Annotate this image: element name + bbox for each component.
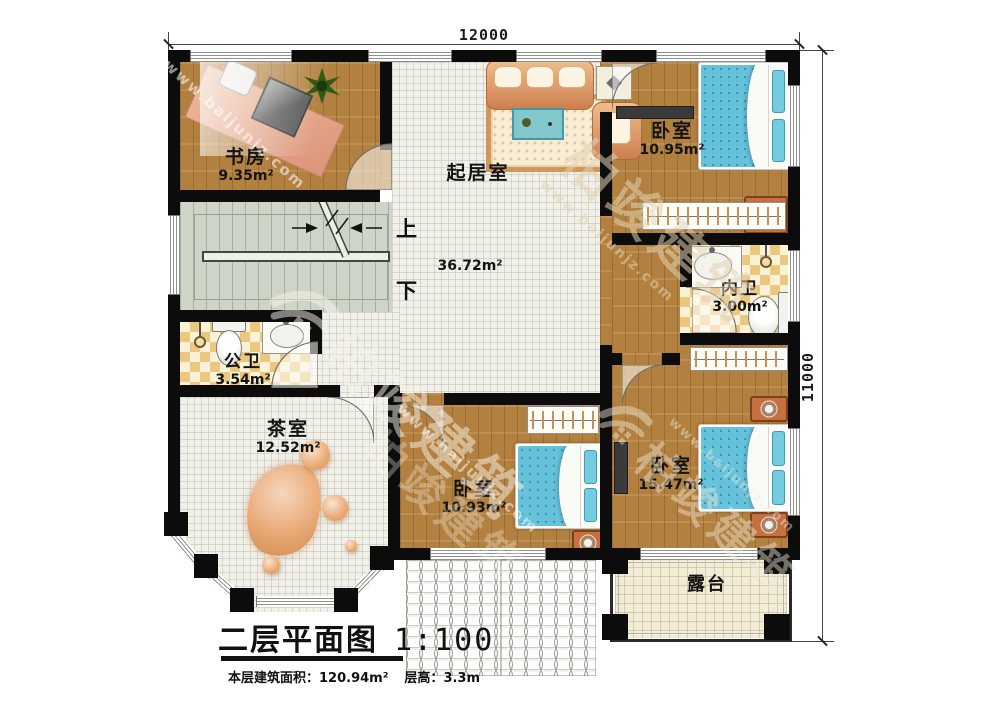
plan-title: 二层平面图 [218, 615, 378, 659]
room-name: 卧室 [441, 478, 506, 500]
coffee-table [512, 108, 564, 140]
drain-cord [199, 320, 201, 337]
stairs-up-label: 上 [396, 213, 417, 243]
room-name: 书房 [218, 146, 273, 168]
room-name: 露台 [687, 574, 727, 595]
dimension-ext [799, 32, 800, 50]
double-bed-bottom-right [698, 424, 790, 512]
room-label-bedroom-bottom-middle: 卧室 10.93m² [441, 478, 506, 517]
tv-screen [614, 442, 628, 494]
bed-duvet [701, 65, 765, 167]
table-decor [548, 122, 552, 126]
bed-pillow-panel [768, 65, 787, 167]
door-arc [622, 365, 666, 409]
window [788, 428, 800, 516]
tea-art-circle [345, 540, 357, 552]
bay-pillar [194, 554, 218, 578]
room-name: 茶室 [255, 418, 320, 440]
bed-pillow [772, 470, 785, 505]
wall [600, 345, 612, 560]
dimension-line-right [822, 50, 823, 642]
floor-area-stat: 本层建筑面积：120.94m² [228, 667, 388, 686]
threshold [680, 287, 692, 333]
title-stats: 本层建筑面积：120.94m² 层高：3.3m [228, 667, 480, 686]
room-area: 12.52m² [255, 440, 320, 457]
window [168, 215, 180, 295]
dimension-width-label: 12000 [459, 26, 509, 44]
room-area: 3.00m² [712, 299, 767, 316]
bed-pillow [772, 70, 785, 113]
bed-pillow-panel [768, 427, 787, 509]
room-name: 内卫 [712, 279, 767, 299]
wall [322, 385, 340, 397]
floor-drain [194, 336, 206, 348]
bay-pillar [164, 512, 188, 536]
tea-art-circle [262, 556, 280, 574]
terrace-pillar [764, 548, 790, 574]
wall [662, 353, 680, 365]
room-area: 15.47m² [638, 477, 703, 494]
window [430, 548, 546, 560]
wall [612, 353, 622, 365]
wall [168, 190, 380, 202]
title-block: 二层平面图 1:100 [218, 615, 494, 659]
floor-height-stat: 层高：3.3m [404, 667, 480, 686]
title-underline [221, 656, 403, 661]
door-arc [326, 397, 374, 445]
wall [680, 245, 692, 287]
door-arc [344, 142, 392, 190]
terrace-pillar [602, 548, 628, 574]
wall [392, 393, 402, 405]
threshold [600, 216, 612, 345]
wall [612, 233, 788, 245]
window [788, 250, 800, 322]
door-arc [612, 63, 660, 111]
desk-light-glow [200, 56, 400, 156]
stairs-break-symbol [286, 194, 396, 298]
dimension-ext [792, 641, 834, 642]
room-area: 3.54m² [215, 372, 270, 389]
window [190, 50, 292, 62]
sofa-cushion [494, 66, 522, 88]
window [516, 50, 602, 62]
nightstand [750, 512, 788, 538]
room-label-living: 起居室 [446, 162, 509, 184]
bed-pillow [584, 450, 597, 484]
plan-scale: 1:100 [394, 623, 494, 658]
room-label-private-bath: 内卫 3.00m² [712, 279, 767, 316]
threshold [340, 385, 374, 397]
bay-pillar [230, 588, 254, 612]
sink-faucet [709, 247, 715, 253]
room-label-public-bath: 公卫 3.54m² [215, 352, 270, 389]
room-area: 10.93m² [441, 500, 506, 517]
floor-area-label: 本层建筑面积： [228, 671, 319, 686]
bed-duvet [701, 427, 765, 509]
double-bed-bottom-middle [515, 443, 602, 529]
tea-art-circle [322, 495, 348, 521]
window [368, 50, 452, 62]
window [640, 548, 758, 560]
sofa-cushion [526, 66, 554, 88]
stairs-down-label: 下 [396, 275, 417, 305]
room-area: 9.35m² [218, 168, 273, 185]
floor-plan-canvas: 上 下 [0, 0, 1000, 706]
room-name: 卧室 [638, 455, 703, 477]
bed-pillow [772, 431, 785, 466]
sofa-cushion [558, 66, 586, 88]
bed-pillow [772, 119, 785, 162]
wall [380, 62, 392, 150]
double-bed-top-right [698, 62, 790, 170]
room-area: 10.95m² [639, 142, 704, 159]
dimension-height-label: 11000 [799, 352, 817, 402]
room-label-terrace: 露台 [687, 574, 727, 595]
door-arc [270, 340, 318, 388]
floor-height-label: 层高： [404, 671, 443, 686]
bay-pillar [334, 588, 358, 612]
room-label-tea-room: 茶室 12.52m² [255, 418, 320, 457]
bay-window [256, 596, 338, 607]
wardrobe [642, 202, 786, 230]
terrace-pillar [602, 614, 628, 640]
wardrobe [690, 347, 788, 371]
terrace-parapet-inner [618, 562, 784, 634]
threshold [402, 393, 444, 405]
room-label-bedroom-bottom-right: 卧室 15.47m² [638, 455, 703, 494]
bed-duvet [518, 446, 577, 526]
wall [680, 333, 788, 345]
room-label-study: 书房 9.35m² [218, 146, 273, 185]
dimension-ext [800, 50, 834, 51]
nightstand [750, 396, 788, 422]
bed-pillow [584, 488, 597, 522]
floor-height-value: 3.3m [443, 671, 480, 686]
room-area-living: 36.72m² [437, 258, 502, 275]
wall [444, 393, 600, 405]
floor-area-value: 120.94m² [319, 671, 388, 686]
room-label-bedroom-top-right: 卧室 10.95m² [639, 120, 704, 159]
table-decor [522, 118, 531, 127]
threshold [622, 353, 662, 365]
terrace-pillar [764, 614, 790, 640]
bed-pillow-panel [580, 446, 599, 526]
room-name: 公卫 [215, 352, 270, 372]
window [788, 85, 800, 167]
bay-pillar [370, 546, 394, 570]
room-area: 36.72m² [437, 258, 502, 275]
door-arc [398, 405, 444, 451]
wall [600, 112, 612, 216]
dimension-ext [168, 32, 169, 50]
wardrobe [527, 406, 599, 434]
wall [168, 310, 322, 322]
room-name: 起居室 [446, 162, 509, 184]
room-name: 卧室 [639, 120, 704, 142]
sink-basin [694, 252, 732, 280]
dimension-line-top [168, 44, 800, 45]
potted-plant [304, 68, 340, 104]
window [656, 50, 766, 62]
